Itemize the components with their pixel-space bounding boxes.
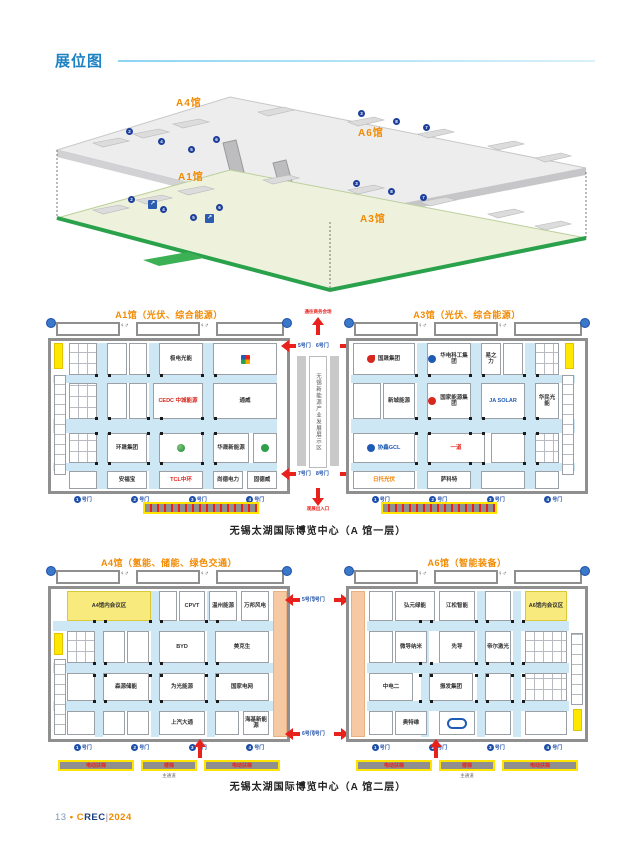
booth-cluster (69, 433, 97, 463)
booth-cluster (525, 631, 567, 663)
gate-dot: 4 (160, 206, 167, 213)
pillar (428, 432, 431, 435)
lobby-room (216, 322, 284, 336)
pillar (104, 700, 107, 703)
pillar (160, 462, 163, 465)
booth-微导纳米: 微导纳米 (395, 631, 427, 663)
pillar (486, 662, 489, 665)
booth-label: JA SOLAR (488, 398, 518, 404)
booth-振发集团: 振发集团 (429, 673, 473, 701)
booth-small (485, 711, 511, 735)
booth-易之力: 易之力 (481, 343, 501, 375)
booth-A4馆内会议区: A4馆内会议区 (67, 591, 151, 621)
booth-万邦风电: 万邦风电 (241, 591, 269, 621)
booth-label: 为光能源 (170, 684, 194, 690)
pillar (93, 674, 96, 677)
pillar (522, 662, 525, 665)
restroom-icon: ♀♂ (498, 571, 507, 577)
gate-label: 4号门 (544, 744, 562, 751)
booth-奥特维: 奥特维 (395, 711, 427, 735)
pillar (475, 674, 478, 677)
booth-cluster (525, 673, 567, 701)
pillar (511, 674, 514, 677)
booth-安福宝: 安福宝 (107, 471, 147, 489)
booth-label: CPVT (184, 603, 201, 609)
booth-small (67, 711, 95, 735)
booth-small (107, 383, 127, 419)
booth-固德威: 固德威 (247, 471, 277, 489)
flame-logo-icon (367, 355, 375, 363)
side-gate-label: 6号门 (316, 342, 329, 349)
side-gate-label: 6号门 (312, 730, 325, 737)
booth-label: 新城能源 (387, 398, 411, 404)
booth-label: CEDC 中城能源 (157, 398, 198, 404)
pillar (511, 620, 514, 623)
pillar (511, 662, 514, 665)
booth-美克生: 美克生 (215, 631, 269, 663)
pillar (149, 674, 152, 677)
gate-dot: 7 (423, 124, 430, 131)
hall-a4-gates: 1号门2号门3号门4号门 (54, 744, 284, 751)
gate-dot: 3 (353, 180, 360, 187)
pillar (108, 417, 111, 420)
booth-TCL中环: TCL中环 (159, 471, 203, 489)
booth-温州能源: 温州能源 (209, 591, 237, 621)
gate-dot: 2 (128, 196, 135, 203)
booth-small (127, 631, 149, 663)
booth-CPVT: CPVT (179, 591, 205, 621)
aisle (53, 463, 277, 471)
pillar (104, 620, 107, 623)
floor1-section: A1馆（光伏、综合能源） A3馆（光伏、综合能源） ♀♂ ♀♂ 极电光能CEDC… (48, 308, 588, 546)
side-gate-label: 8号门 (316, 470, 329, 477)
booth-label: 通威 (238, 398, 251, 404)
gate-dot: 8 (393, 118, 400, 125)
camera-icon (344, 566, 354, 576)
right-arrow-icon (334, 732, 342, 736)
booth-yellowblock (54, 633, 63, 655)
lobby-room (136, 570, 200, 584)
pillar (95, 462, 98, 465)
hall-a3: ♀♂ ♀♂ 国晟集团华电科工集团易之力新城能源国家能源集团JA SOLAR华民光… (346, 320, 588, 520)
blue-logo-icon (428, 355, 436, 363)
gate-dot-layer: 24563872456387 (48, 88, 588, 302)
booth-cluster (67, 631, 95, 663)
hall-a3-lobby: ♀♂ ♀♂ (346, 320, 588, 336)
left-arrow-icon (292, 598, 300, 602)
booth-协鑫GCL: 协鑫GCL (353, 433, 415, 463)
booth-label: 易之力 (482, 353, 500, 366)
gate-dot: 2 (126, 128, 133, 135)
pillar (469, 417, 472, 420)
booth-label: 万邦风电 (243, 603, 267, 609)
aisle (367, 621, 569, 631)
pillar (415, 462, 418, 465)
aisle (367, 701, 569, 711)
lobby-room (136, 322, 200, 336)
booth-exhibitor (213, 343, 277, 375)
pillar (201, 462, 204, 465)
corridor-info-box: 无锡新能源产业发展展示区 (309, 356, 327, 468)
pillar (430, 674, 433, 677)
booth-label: 华晟新能源 (216, 445, 246, 451)
gate-label: 4号门 (246, 744, 264, 751)
hall-a4-escalator-bars: 电动扶梯楼梯电动扶梯 (58, 760, 280, 771)
booth-small (485, 673, 511, 701)
restroom-icon: ♀♂ (498, 323, 507, 329)
hall-a3-floor: 国晟集团华电科工集团易之力新城能源国家能源集团JA SOLAR华民光能协鑫GCL… (346, 338, 588, 494)
aisle (367, 663, 569, 673)
booth-JA SOLAR: JA SOLAR (481, 383, 525, 419)
pillar (522, 700, 525, 703)
ramp-strip (330, 356, 339, 466)
restroom-icon: ♀♂ (200, 323, 209, 329)
booth-国家电网: 国家电网 (215, 673, 269, 701)
hall-a1: ♀♂ ♀♂ 极电光能CEDC 中城能源通威环晟集团华晟新能源安福宝TCL中环尚德… (48, 320, 290, 520)
booth-label: 协鑫GCL (377, 445, 402, 451)
pillar (149, 700, 152, 703)
pillar (469, 374, 472, 377)
booth-small (525, 711, 567, 735)
hall-a4-floor: A4馆内会议区CPVT温州能源万邦风电BYD美克生森源储能为光能源国家电网上汽大… (48, 586, 290, 742)
title-underline (118, 60, 595, 62)
booth-label: 振发集团 (439, 684, 463, 690)
booth-为光能源: 为光能源 (159, 673, 205, 701)
pillar (201, 432, 204, 435)
booth-尚德电力: 尚德电力 (213, 471, 243, 489)
escalator-bar: 楼梯 (439, 760, 495, 771)
booth-small (129, 383, 147, 419)
aisle (53, 375, 277, 383)
aisle (351, 463, 575, 471)
booth-label: 中电二 (382, 684, 401, 690)
escalator-bar: 楼梯 (141, 760, 197, 771)
pillar (214, 432, 217, 435)
pillar (147, 432, 150, 435)
booth-peach (351, 591, 365, 737)
booth-label: 上汽大通 (170, 720, 194, 726)
hall-a1-lobby: ♀♂ ♀♂ (48, 320, 290, 336)
gate-label: 1号门 (74, 496, 92, 503)
pillar (160, 417, 163, 420)
hall-a1-floor: 极电光能CEDC 中城能源通威环晟集团华晟新能源安福宝TCL中环尚德电力固德威 (48, 338, 290, 494)
booth-small (103, 631, 125, 663)
pillar (147, 374, 150, 377)
booth-small (127, 711, 149, 735)
lobby-room (514, 570, 582, 584)
pillar (482, 462, 485, 465)
green-logo-icon (261, 444, 269, 452)
pillar (95, 374, 98, 377)
booth-label: 环晟集团 (115, 445, 139, 451)
pillar (430, 620, 433, 623)
page-title: 展位图 (55, 50, 103, 71)
oval-logo-icon (447, 718, 467, 729)
pillar (104, 674, 107, 677)
booth-label: 萨科特 (440, 477, 459, 483)
floor2-caption: 无锡太湖国际博览中心（A 馆二层） (48, 778, 588, 793)
pillar (486, 674, 489, 677)
pillar (430, 662, 433, 665)
booth-上汽大通: 上汽大通 (159, 711, 205, 735)
main-entrance-arrow-icon (434, 746, 438, 758)
pillar (205, 674, 208, 677)
pillar (475, 700, 478, 703)
booth-CEDC 中城能源: CEDC 中城能源 (153, 383, 203, 419)
pillar (93, 662, 96, 665)
pillar (482, 417, 485, 420)
overview-3d: A4馆 A6馆 A1馆 A3馆 24563872456387 ↗ ↗ (48, 88, 588, 302)
booth-small (67, 673, 95, 701)
hall-a6: ♀♂ ♀♂ 弘元绿能江松智能A6馆内会议区微导纳米先导帝尔激光中电二振发集团奥特… (346, 568, 588, 768)
pillar (522, 674, 525, 677)
footer-year: 2024 (109, 812, 132, 823)
blue-logo-icon (367, 444, 375, 452)
pillar (95, 432, 98, 435)
booth-yellowblock (573, 709, 582, 731)
security-lane-bar (381, 502, 497, 514)
booth-clusterv (54, 659, 66, 735)
aisle (53, 419, 277, 433)
gate-label: 4号门 (544, 496, 562, 503)
aisle (53, 621, 273, 631)
pinwheel-logo-icon (241, 355, 250, 364)
booth-small (535, 471, 559, 489)
restroom-icon: ♀♂ (120, 323, 129, 329)
pillar (536, 417, 539, 420)
booth-cluster (69, 383, 97, 419)
pillar (486, 700, 489, 703)
booth-label: 温州能源 (211, 603, 235, 609)
lobby-room (216, 570, 284, 584)
camera-icon (46, 318, 56, 328)
brand-logo-rest: REC (84, 812, 106, 823)
pillar (475, 620, 478, 623)
hall-a6-floor: 弘元绿能江松智能A6馆内会议区微导纳米先导帝尔激光中电二振发集团奥特维 (346, 586, 588, 742)
booth-帝尔激光: 帝尔激光 (485, 631, 511, 663)
pillar (147, 417, 150, 420)
gate-dot: 5 (190, 214, 197, 221)
booth-label: 帝尔激光 (486, 644, 510, 650)
restroom-icon: ♀♂ (200, 571, 209, 577)
to-business-hall-label: 通往商务会场 (290, 309, 346, 315)
pillar (201, 417, 204, 420)
booth-萨科特: 萨科特 (427, 471, 471, 489)
booth-label: 森源储能 (114, 684, 138, 690)
booth-label: 国家电网 (230, 684, 254, 690)
pillar (523, 462, 526, 465)
booth-cluster (69, 343, 97, 375)
page-number: 13 (55, 812, 67, 823)
pillar (522, 620, 525, 623)
camera-icon (580, 566, 590, 576)
pillar (536, 462, 539, 465)
red-logo-icon (428, 397, 436, 405)
pillar (104, 662, 107, 665)
hall-a6-lobby: ♀♂ ♀♂ (346, 568, 588, 584)
pillar (108, 462, 111, 465)
gate-dot: 6 (216, 204, 223, 211)
right-arrow-icon (334, 598, 342, 602)
side-gate-label: 7号门 (298, 470, 311, 477)
pillar (205, 620, 208, 623)
booth-small (159, 591, 177, 621)
hall-a6-escalator-bars: 电动扶梯楼梯电动扶梯 (356, 760, 578, 771)
pillar (419, 620, 422, 623)
side-gate-label: 5号门 (298, 342, 311, 349)
pillar (214, 417, 217, 420)
booth-label: 尚德电力 (216, 477, 240, 483)
booth-label: 海基新能源 (244, 717, 268, 730)
booth-江松智能: 江松智能 (439, 591, 475, 621)
pillar (475, 662, 478, 665)
pillar (160, 700, 163, 703)
hall-a4: ♀♂ ♀♂ A4馆内会议区CPVT温州能源万邦风电BYD美克生森源储能为光能源国… (48, 568, 290, 768)
pillar (523, 432, 526, 435)
booth-peach (273, 591, 287, 737)
pillar (160, 432, 163, 435)
escalator-bar: 电动扶梯 (356, 760, 432, 771)
booth-small (107, 343, 127, 375)
booth-label: 先导 (450, 644, 463, 650)
booth-label: 极电光能 (169, 356, 193, 362)
booth-华民光能: 华民光能 (535, 383, 559, 419)
pillar (430, 700, 433, 703)
pillar (469, 462, 472, 465)
globe-logo-icon (177, 444, 185, 452)
gate-dot: 5 (188, 146, 195, 153)
booth-label: A4馆内会议区 (91, 603, 128, 609)
gate-label: 2号门 (131, 744, 149, 751)
pillar (201, 374, 204, 377)
aisle (351, 419, 575, 433)
hall-a4-lobby: ♀♂ ♀♂ (48, 568, 290, 584)
pillar (486, 620, 489, 623)
camera-icon (344, 318, 354, 328)
booth-label: 江松智能 (445, 603, 469, 609)
escalator-icon: ↗ (205, 214, 214, 223)
pillar (216, 674, 219, 677)
booth-small (485, 591, 511, 621)
down-arrow-icon (316, 488, 320, 499)
central-corridor: 通往商务会场 5号门 6号门 无锡新能源产业发展展示区 7号门 8号门 观展出入… (290, 320, 346, 510)
booth-先导: 先导 (439, 631, 475, 663)
booth-small (69, 471, 97, 489)
booth-small (481, 471, 525, 489)
pillar (482, 432, 485, 435)
pillar (523, 417, 526, 420)
escalator-bar: 电动扶梯 (58, 760, 134, 771)
booth-华晟新能源: 华晟新能源 (213, 433, 249, 463)
pillar (205, 662, 208, 665)
booth-通威: 通威 (213, 383, 277, 419)
pillar (147, 462, 150, 465)
booth-label: 安福宝 (118, 477, 137, 483)
booth-label: 华电科工集团 (438, 353, 470, 366)
footer-dot: • (70, 812, 74, 823)
booth-中电二: 中电二 (369, 673, 413, 701)
booth-small (103, 711, 125, 735)
booth-small (353, 383, 381, 419)
pillar (419, 662, 422, 665)
camera-icon (282, 566, 292, 576)
booth-exhibitor (253, 433, 277, 463)
booth-弘元绿能: 弘元绿能 (395, 591, 435, 621)
booth-label: 日托光伏 (372, 477, 396, 483)
restroom-icon: ♀♂ (120, 571, 129, 577)
pillar (108, 432, 111, 435)
pillar (428, 374, 431, 377)
booth-label: 国晟集团 (377, 356, 401, 362)
pillar (482, 374, 485, 377)
pillar (216, 700, 219, 703)
booth-label: 微导纳米 (399, 644, 423, 650)
gate-label: 3号门 (487, 744, 505, 751)
lobby-room (56, 322, 120, 336)
gate-dot: 8 (388, 188, 395, 195)
pillar (216, 620, 219, 623)
booth-clusterv (562, 375, 574, 475)
booth-clusterv (571, 633, 583, 705)
booth-label: 奥特维 (402, 720, 421, 726)
booth-label: 华民光能 (536, 395, 558, 408)
booth-label: 美克生 (233, 644, 252, 650)
pillar (160, 374, 163, 377)
pillar (415, 417, 418, 420)
booth-label: 一道 (449, 445, 462, 451)
left-arrow-icon (288, 472, 296, 476)
gate-label: 1号门 (372, 744, 390, 751)
booth-cluster (535, 433, 559, 463)
gate-dot: 6 (213, 136, 220, 143)
booth-海基新能源: 海基新能源 (243, 711, 269, 735)
escalator-icon: ↗ (148, 200, 157, 209)
lobby-room (354, 570, 418, 584)
pillar (419, 700, 422, 703)
page-footer: 13 • CREC|2024 (55, 812, 132, 823)
ramp-strip (297, 356, 306, 466)
hall-a6-gates: 1号门2号门3号门4号门 (352, 744, 582, 751)
pillar (511, 700, 514, 703)
escalator-bar: 电动扶梯 (502, 760, 578, 771)
booth-日托光伏: 日托光伏 (353, 471, 415, 489)
visitor-entrance-label: 观展出入口 (290, 506, 346, 512)
up-arrow-icon (316, 324, 320, 335)
lobby-room (354, 322, 418, 336)
security-lane-bar (143, 502, 259, 514)
booth-clusterv (54, 375, 66, 475)
camera-icon (46, 566, 56, 576)
pillar (415, 432, 418, 435)
gate-dot: 3 (358, 110, 365, 117)
pillar (419, 674, 422, 677)
lobby-room (434, 322, 498, 336)
pillar (149, 620, 152, 623)
corridor-info-text: 无锡新能源产业发展展示区 (314, 373, 322, 451)
booth-新城能源: 新城能源 (383, 383, 415, 419)
booth-exhibitor (159, 433, 203, 463)
restroom-icon: ♀♂ (418, 323, 427, 329)
booth-small (369, 711, 393, 735)
lobby-room (56, 570, 120, 584)
left-arrow-icon (288, 344, 296, 348)
gate-label: 1号门 (74, 744, 92, 751)
left-arrow-icon (292, 732, 300, 736)
escalator-bar: 电动扶梯 (204, 760, 280, 771)
pillar (523, 374, 526, 377)
pillar (214, 462, 217, 465)
booth-small (369, 591, 393, 621)
